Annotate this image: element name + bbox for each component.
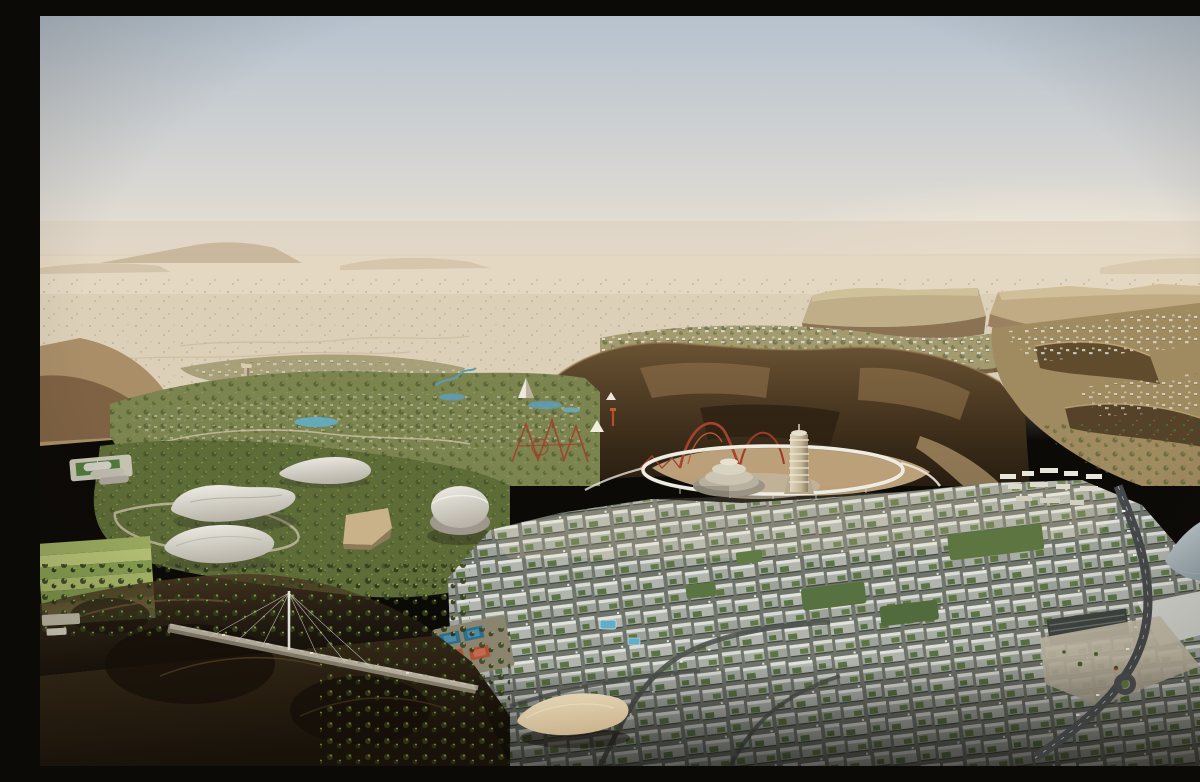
aerial-city-render: Hazy pale blue-grey sky fading to warm b… — [40, 16, 1200, 766]
scene-canvas: Hazy pale blue-grey sky fading to warm b… — [40, 16, 1200, 766]
vignette-overlay — [40, 16, 1200, 766]
